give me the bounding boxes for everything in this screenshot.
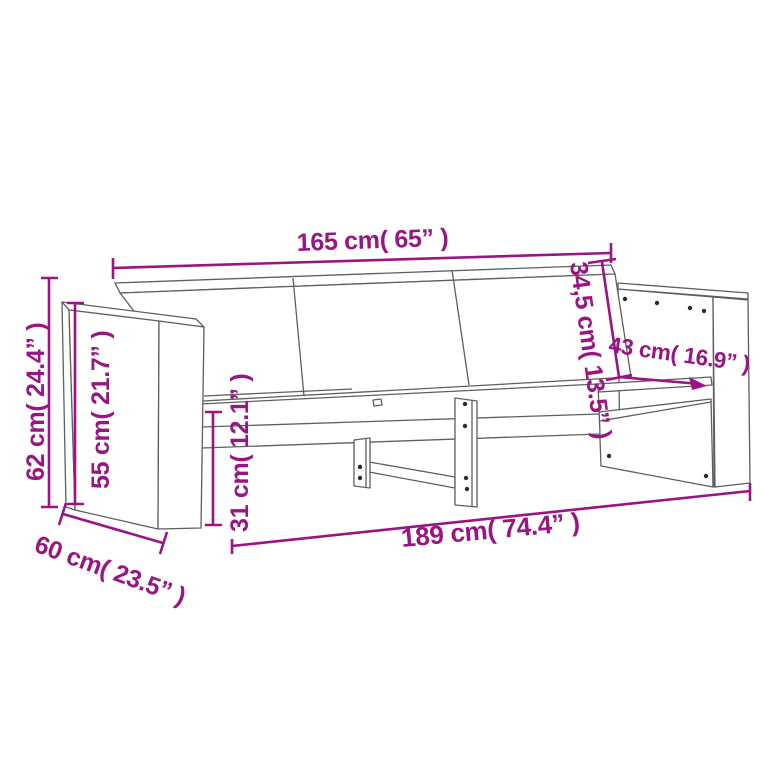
product-dimension-diagram: 165 cm( 65” ) 34,5 cm( 13.5” ) 43 cm( 16… bbox=[0, 0, 767, 767]
dimension-label-seat-height: 31 cm( 12.1” ) bbox=[226, 374, 254, 532]
dimension-label-overall-height: 62 cm( 24.4” ) bbox=[22, 323, 50, 481]
dimension-label-depth: 60 cm( 23.5” ) bbox=[31, 530, 189, 610]
dimension-armrest-height: 55 cm( 21.7” ) bbox=[67, 303, 115, 504]
left-center-leg bbox=[354, 438, 370, 488]
sofa-wireframe bbox=[62, 265, 750, 529]
left-armrest bbox=[62, 302, 204, 529]
right-armrest-outer-face bbox=[713, 297, 750, 487]
diagonal-brace bbox=[369, 462, 455, 488]
right-base-panel bbox=[599, 399, 713, 487]
dimension-overall-height: 62 cm( 24.4” ) bbox=[22, 278, 58, 507]
dimension-label-back-width: 165 cm( 65” ) bbox=[296, 224, 449, 257]
dimension-diagram-canvas: 165 cm( 65” ) 34,5 cm( 13.5” ) 43 cm( 16… bbox=[0, 0, 767, 767]
dimension-label-armrest-height: 55 cm( 21.7” ) bbox=[87, 331, 115, 489]
dimension-overall-width: 189 cm( 74.4” ) bbox=[232, 483, 750, 554]
dimension-label-overall-width: 189 cm( 74.4” ) bbox=[400, 507, 581, 553]
seat-slat-gap bbox=[373, 399, 382, 406]
left-armrest-front-face bbox=[158, 321, 204, 529]
